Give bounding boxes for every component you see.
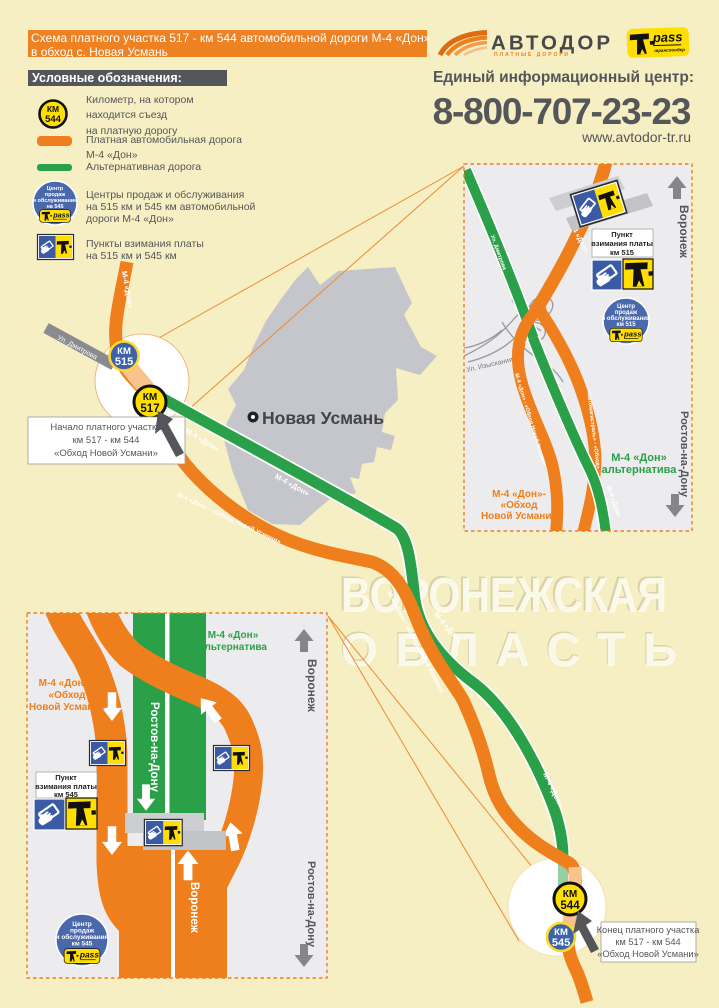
- svg-text:Воронеж: Воронеж: [677, 205, 691, 258]
- svg-text:альтернатива: альтернатива: [199, 642, 267, 653]
- svg-text:Новой Усмани»: Новой Усмани»: [481, 511, 558, 522]
- svg-text:«Обход: «Обход: [49, 689, 87, 701]
- svg-text:М-4 «Дон»: М-4 «Дон»: [611, 452, 667, 464]
- svg-text:М-4 «Дон» -: М-4 «Дон» -: [39, 678, 96, 689]
- svg-text:Ростов-на-Дону: Ростов-на-Дону: [148, 702, 160, 793]
- svg-text:км 515: км 515: [616, 322, 636, 328]
- svg-text:544: 544: [45, 114, 62, 125]
- svg-text:и обслуживания: и обслуживания: [33, 197, 78, 204]
- svg-text:544: 544: [560, 900, 580, 912]
- svg-text:КМ: КМ: [563, 889, 577, 900]
- svg-text:545: 545: [552, 937, 570, 949]
- svg-text:Начало платного участка: Начало платного участка: [50, 422, 162, 433]
- svg-text:515: 515: [115, 356, 133, 368]
- svg-text:на 545: на 545: [46, 204, 63, 210]
- svg-text:М-4 «Дон»-: М-4 «Дон»-: [492, 489, 546, 500]
- svg-text:км 517 - км 544: км 517 - км 544: [615, 937, 680, 947]
- svg-text:альтернатива: альтернатива: [602, 464, 678, 476]
- svg-text:«Обход: «Обход: [501, 499, 539, 511]
- svg-text:км 517 - км 544: км 517 - км 544: [73, 435, 140, 446]
- svg-text:КМ: КМ: [143, 392, 157, 403]
- svg-text:Пункт: Пункт: [611, 230, 633, 239]
- svg-text:ПЛАТНЫЕ ДОРОГИ: ПЛАТНЫЕ ДОРОГИ: [494, 52, 570, 58]
- svg-text:взимания платы: взимания платы: [591, 239, 653, 248]
- svg-text:Пункт: Пункт: [55, 773, 77, 782]
- svg-text:Новой Усмани»: Новой Усмани»: [29, 702, 106, 713]
- svg-text:«Обход Новой Усмани»: «Обход Новой Усмани»: [597, 949, 699, 959]
- svg-text:км 515: км 515: [610, 248, 634, 257]
- svg-text:Воронеж: Воронеж: [188, 882, 200, 934]
- svg-text:КМ: КМ: [47, 104, 59, 114]
- svg-text:Ростов-на-Дону: Ростов-на-Дону: [305, 861, 317, 948]
- svg-text:«Обход Новой Усмани»: «Обход Новой Усмани»: [54, 448, 158, 459]
- svg-text:517: 517: [140, 403, 159, 415]
- svg-text:км 545: км 545: [72, 941, 93, 948]
- svg-text:Новая Усмань: Новая Усмань: [262, 408, 384, 428]
- svg-text:Ростов-на-Дону: Ростов-на-Дону: [678, 411, 690, 498]
- svg-text:Конец платного участка: Конец платного участка: [597, 925, 701, 935]
- svg-text:ОБЛАСТЬ: ОБЛАСТЬ: [341, 623, 677, 676]
- svg-text:pass: pass: [652, 29, 683, 45]
- svg-text:М-4 «Дон»: М-4 «Дон»: [208, 630, 259, 641]
- svg-text:и обслуживания: и обслуживания: [602, 315, 651, 322]
- svg-text:Воронеж: Воронеж: [305, 659, 319, 712]
